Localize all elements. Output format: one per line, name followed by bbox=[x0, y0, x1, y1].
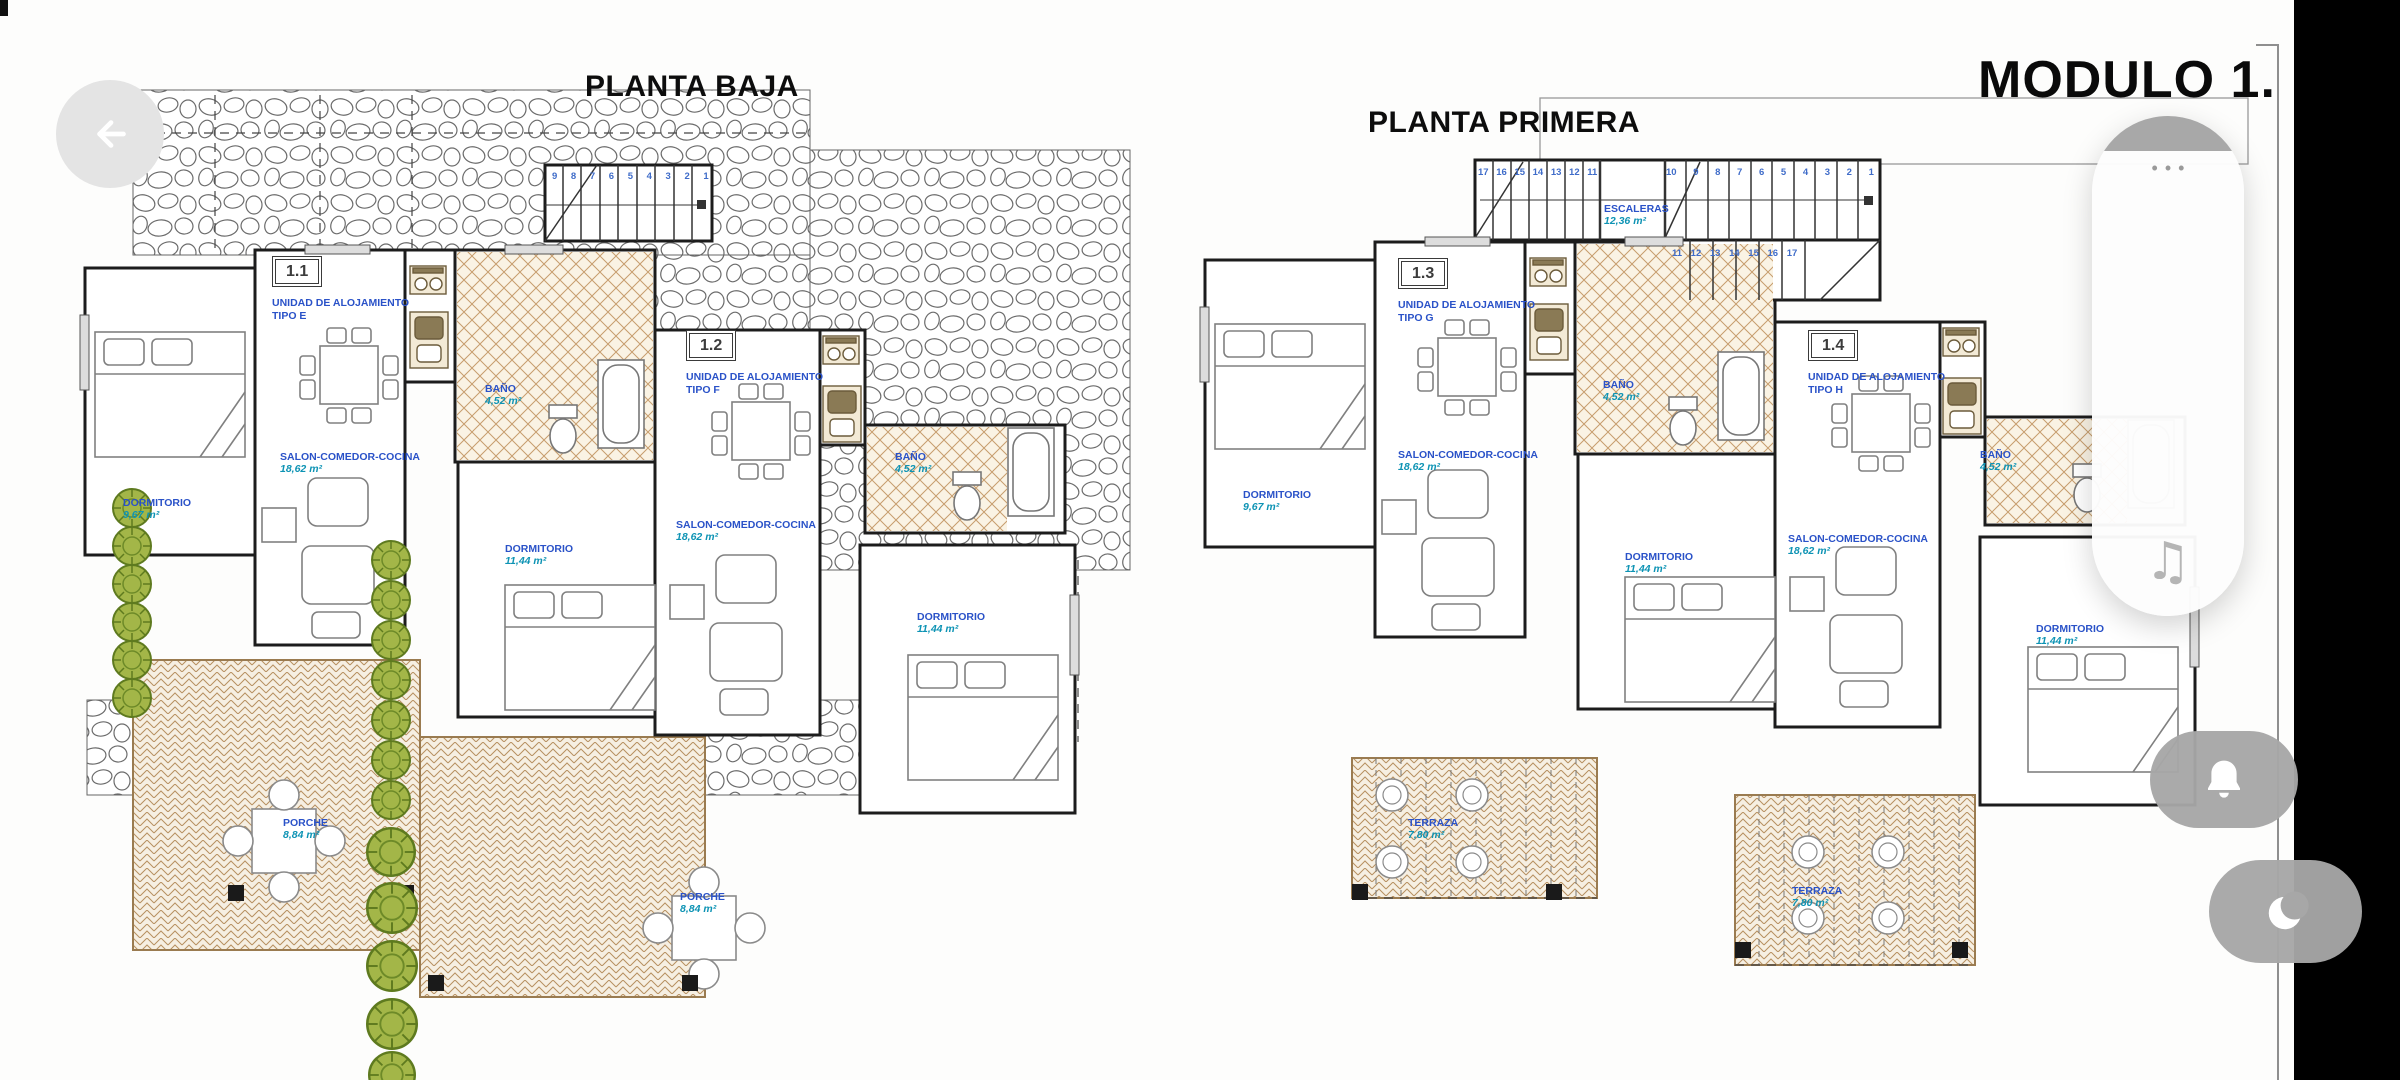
bell-icon bbox=[2200, 756, 2248, 804]
plan-primera-group bbox=[1200, 98, 2248, 965]
page-edge-tick bbox=[2256, 44, 2278, 46]
room-label-porche: PORCHE8,84 m² bbox=[680, 892, 725, 915]
notifications-button[interactable] bbox=[2150, 731, 2298, 828]
room-label-bano: BAÑO4,52 m² bbox=[895, 452, 931, 475]
floorplan-drawing bbox=[0, 0, 2400, 1080]
room-label-terraza: TERRAZA7,80 m² bbox=[1792, 886, 1842, 909]
room-label-escaleras: ESCALERAS12,36 m² bbox=[1604, 204, 1669, 227]
room-label-dormitorio: DORMITORIO11,44 m² bbox=[1625, 552, 1693, 575]
room-label-salon: SALON-COMEDOR-COCINA18,62 m² bbox=[1398, 450, 1538, 473]
unit-name: UNIDAD DE ALOJAMIENTO bbox=[1398, 299, 1535, 312]
stair-numbers-baja: 9 8 7 6 5 4 3 2 1 bbox=[552, 171, 709, 182]
unit-tipo: TIPO H bbox=[1808, 384, 1945, 397]
room-label-terraza: TERRAZA7,80 m² bbox=[1408, 818, 1458, 841]
corner-mark bbox=[0, 0, 8, 16]
music-note-icon[interactable]: ♫ bbox=[2092, 532, 2244, 592]
unit-badge-1-1: 1.1 bbox=[272, 256, 322, 287]
unit-label-1-2: UNIDAD DE ALOJAMIENTO TIPO F bbox=[686, 371, 823, 397]
unit-label-1-4: UNIDAD DE ALOJAMIENTO TIPO H bbox=[1808, 371, 1945, 397]
plan-baja-group bbox=[80, 90, 1130, 1080]
floating-tool-panel[interactable]: ••• ♫ bbox=[2092, 116, 2244, 616]
unit-name: UNIDAD DE ALOJAMIENTO bbox=[1808, 371, 1945, 384]
more-options-icon[interactable]: ••• bbox=[2092, 158, 2244, 179]
stair-numbers-primera-lower: 11 12 13 14 15 16 17 bbox=[1672, 248, 1797, 259]
unit-badge-1-2: 1.2 bbox=[686, 330, 736, 361]
room-label-dormitorio: DORMITORIO11,44 m² bbox=[505, 544, 573, 567]
dark-mode-button[interactable] bbox=[2209, 860, 2362, 963]
room-label-dormitorio: DORMITORIO11,44 m² bbox=[917, 612, 985, 635]
stair-numbers-primera-left: 17 16 15 14 13 12 11 bbox=[1478, 167, 1597, 178]
room-label-dormitorio: DORMITORIO9,67 m² bbox=[1243, 490, 1311, 513]
module-title: MODULO 1. bbox=[1978, 50, 2276, 110]
moon-icon bbox=[2258, 884, 2314, 940]
room-label-porche: PORCHE8,84 m² bbox=[283, 818, 328, 841]
unit-tipo: TIPO F bbox=[686, 384, 823, 397]
app-screen: PLANTA BAJA PLANTA PRIMERA MODULO 1. 1.1… bbox=[0, 0, 2400, 1080]
unit-badge-1-3: 1.3 bbox=[1398, 258, 1448, 289]
unit-tipo: TIPO G bbox=[1398, 312, 1535, 325]
room-label-bano: BAÑO4,52 m² bbox=[1980, 450, 2016, 473]
room-label-dormitorio: DORMITORIO11,44 m² bbox=[2036, 624, 2104, 647]
unit-name: UNIDAD DE ALOJAMIENTO bbox=[272, 297, 409, 310]
unit-name: UNIDAD DE ALOJAMIENTO bbox=[686, 371, 823, 384]
room-label-dormitorio: DORMITORIO9,67 m² bbox=[123, 498, 191, 521]
room-label-bano: BAÑO4,52 m² bbox=[1603, 380, 1639, 403]
room-label-bano: BAÑO4,52 m² bbox=[485, 384, 521, 407]
plan-title-baja: PLANTA BAJA bbox=[585, 70, 799, 104]
stair-numbers-primera-right: 10 9 8 7 6 5 4 3 2 1 bbox=[1666, 167, 1874, 178]
plan-title-primera: PLANTA PRIMERA bbox=[1368, 106, 1640, 140]
unit-label-1-3: UNIDAD DE ALOJAMIENTO TIPO G bbox=[1398, 299, 1535, 325]
room-label-salon: SALON-COMEDOR-COCINA18,62 m² bbox=[1788, 534, 1928, 557]
panel-drag-handle[interactable] bbox=[2092, 116, 2244, 151]
unit-tipo: TIPO E bbox=[272, 310, 409, 323]
unit-badge-1-4: 1.4 bbox=[1808, 330, 1858, 361]
room-label-salon: SALON-COMEDOR-COCINA18,62 m² bbox=[676, 520, 816, 543]
unit-label-1-1: UNIDAD DE ALOJAMIENTO TIPO E bbox=[272, 297, 409, 323]
left-arrow-icon bbox=[84, 108, 136, 160]
back-button[interactable] bbox=[56, 80, 164, 188]
room-label-salon: SALON-COMEDOR-COCINA18,62 m² bbox=[280, 452, 420, 475]
